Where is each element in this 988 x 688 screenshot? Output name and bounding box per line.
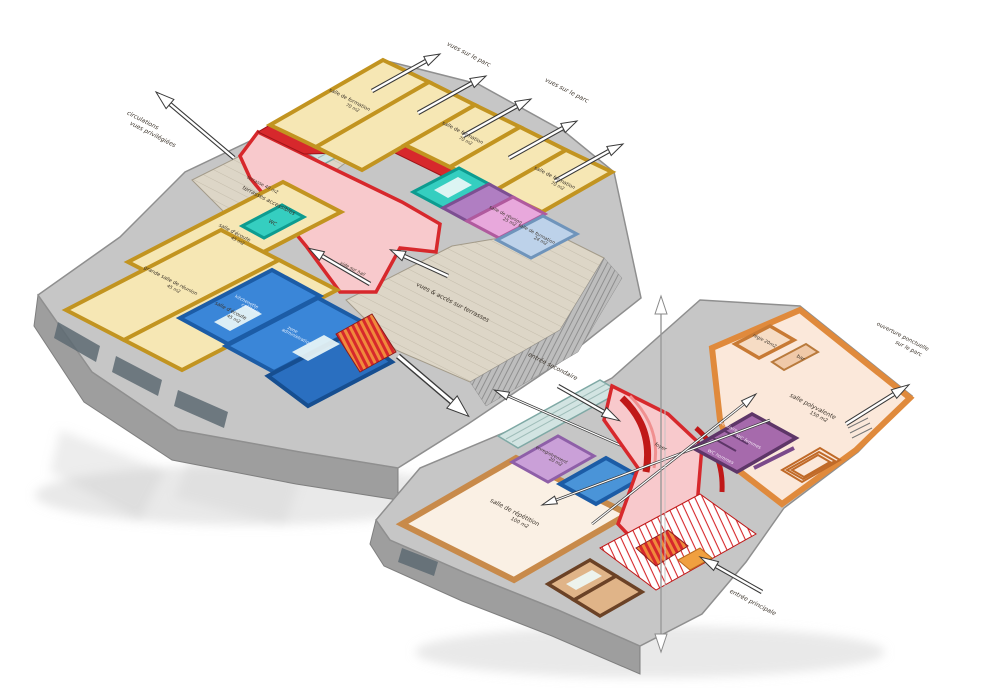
diagram-canvas: salle de formation 70 m2 salle de format… [0, 0, 988, 688]
axonometric-floor-plans: salle de formation 70 m2 salle de format… [0, 0, 988, 688]
